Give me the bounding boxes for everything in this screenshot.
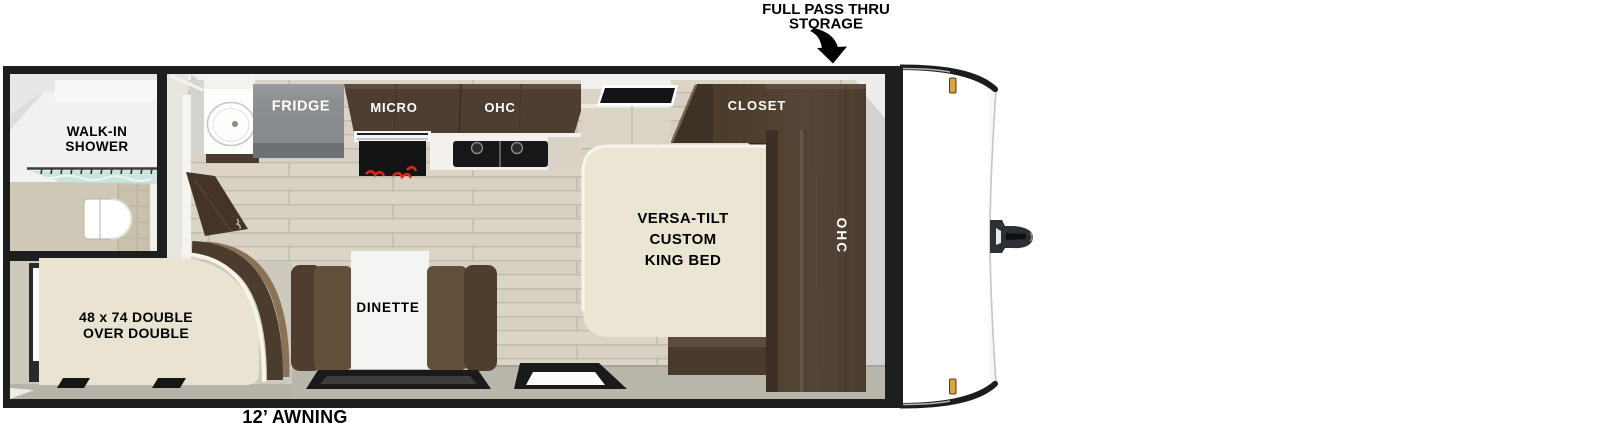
svg-text:OVER DOUBLE: OVER DOUBLE: [83, 325, 189, 341]
svg-text:SHOWER: SHOWER: [65, 139, 128, 154]
svg-text:FRIDGE: FRIDGE: [272, 99, 330, 115]
svg-text:12’ AWNING: 12’ AWNING: [242, 407, 347, 423]
svg-text:DINETTE: DINETTE: [356, 300, 419, 315]
svg-text:VERSA-TILT: VERSA-TILT: [637, 210, 728, 227]
svg-text:STORAGE: STORAGE: [789, 16, 863, 33]
svg-text:KING BED: KING BED: [645, 252, 722, 269]
svg-text:OHC: OHC: [484, 100, 515, 115]
svg-text:CUSTOM: CUSTOM: [649, 231, 716, 248]
svg-text:OHC: OHC: [834, 218, 849, 255]
svg-text:MICRO: MICRO: [370, 100, 417, 115]
svg-text:WALK-IN: WALK-IN: [67, 124, 128, 139]
svg-text:CLOSET: CLOSET: [728, 98, 787, 113]
svg-text:48 x 74 DOUBLE: 48 x 74 DOUBLE: [79, 309, 193, 325]
